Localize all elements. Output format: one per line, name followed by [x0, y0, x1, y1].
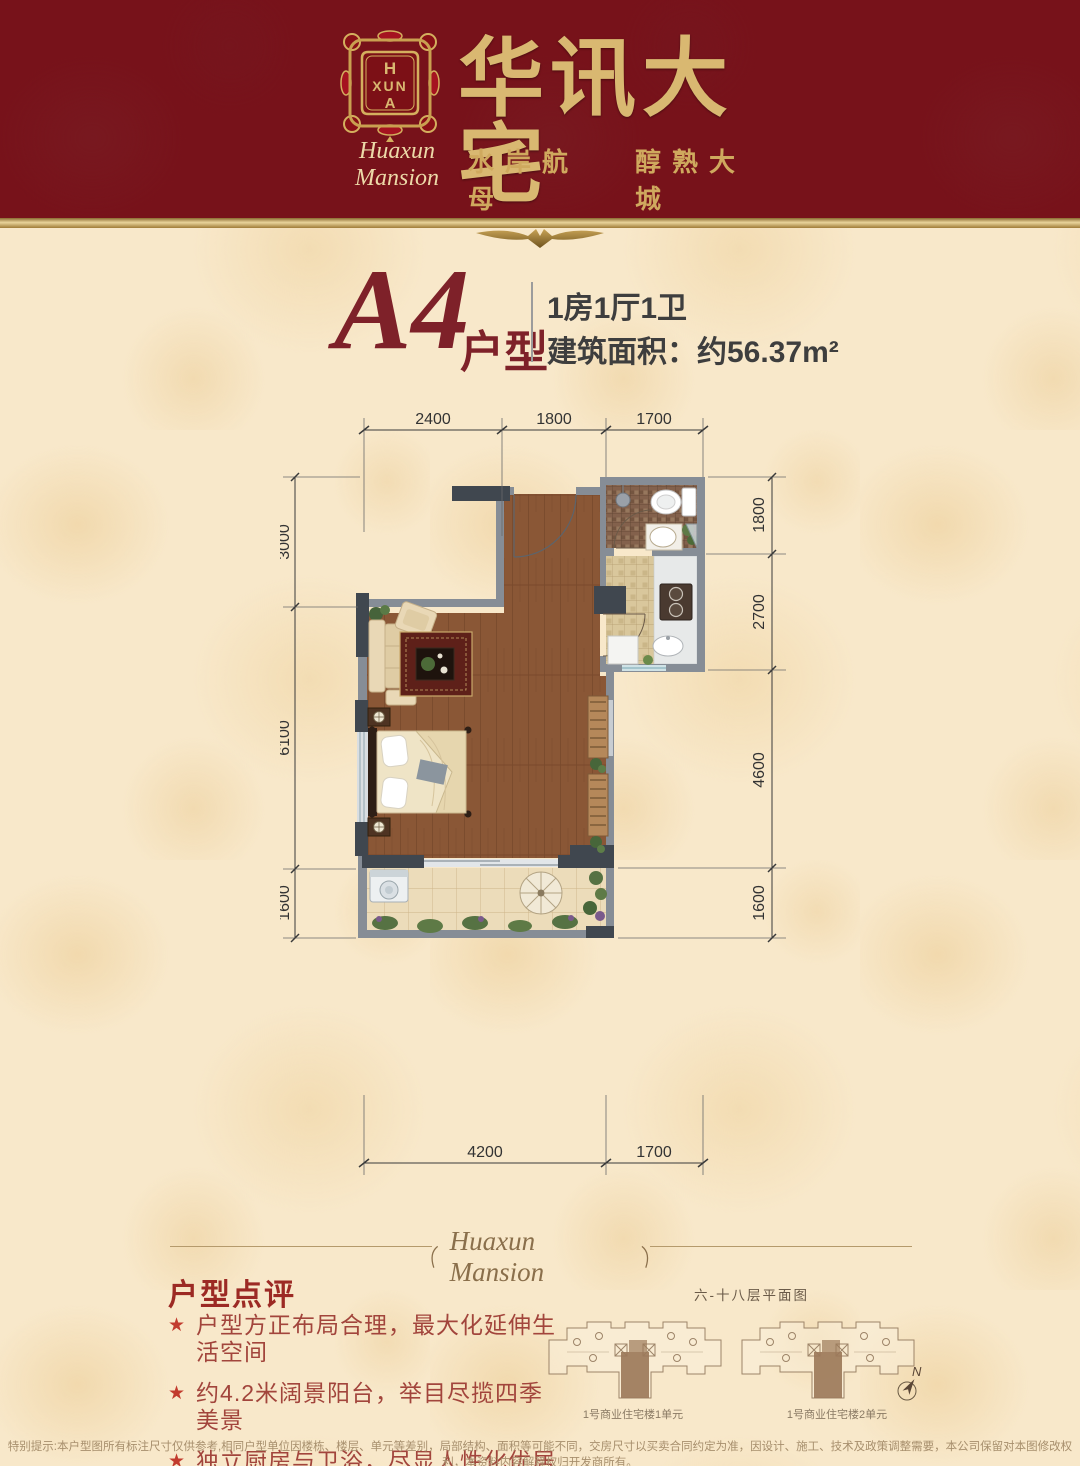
keyplan-title: 六-十八层平面图 [694, 1284, 809, 1304]
brand-subtitle: 水岸航母 醇熟大城 [468, 142, 768, 216]
review-bullet: ★ 户型方正布局合理，最大化延伸生活空间 [168, 1312, 558, 1366]
building-plan-2 [742, 1322, 914, 1398]
monogram-top: H [384, 59, 396, 78]
dim-left-1: 3000 [280, 524, 293, 560]
building-plan-1 [549, 1322, 721, 1398]
bed [368, 727, 472, 818]
header-banner: H XUN A 华讯大宅 Huaxun Mansion 水岸航母 醇熟大城 [0, 0, 1080, 218]
review-bullet-text: 约4.2米阔景阳台，举目尽揽四季美景 [196, 1380, 558, 1434]
rug-and-coffee-table [400, 632, 472, 696]
dim-bottom-1: 4200 [467, 1144, 503, 1161]
review-bullet: ★ 约4.2米阔景阳台，举目尽揽四季美景 [168, 1380, 558, 1434]
dim-top-2: 1800 [536, 411, 572, 428]
nightstand [368, 708, 390, 726]
dim-left-2: 6100 [280, 720, 293, 756]
dim-right-2: 2700 [751, 594, 768, 630]
disclaimer-text: 特别提示:本户型图所有标注尺寸仅供参考,相同户型单位因楼栋、楼层、单元等差别，局… [0, 1438, 1080, 1466]
unit-code-suffix: 户型 [460, 316, 548, 380]
monogram-mid: XUN [372, 78, 408, 94]
divider-script-row: Huaxun Mansion [428, 1226, 652, 1288]
keyplan-buildings [545, 1306, 925, 1406]
poster-page: H XUN A 华讯大宅 Huaxun Mansion 水岸航母 醇熟大城 A4… [0, 0, 1080, 1466]
north-label: N [912, 1364, 922, 1379]
kitchen-cabinet [608, 636, 638, 664]
toilet [651, 488, 696, 516]
brand-emblem-icon: H XUN A [336, 28, 444, 150]
star-icon: ★ [168, 1312, 185, 1340]
nightstand [368, 818, 390, 836]
dim-right-3: 4600 [751, 752, 768, 788]
divider-line-left [170, 1246, 432, 1247]
unit-code: A4 [334, 252, 469, 368]
patio-table [520, 872, 562, 914]
review-heading: 户型点评 [168, 1270, 296, 1314]
unit-layout: 1房1厅1卫 [547, 283, 687, 327]
flourish-left-icon [428, 1244, 440, 1270]
brand-subtitle-left: 水岸航母 [468, 142, 601, 216]
floor-plan: 2400 1800 1700 3000 6100 1600 1800 2700 … [280, 400, 800, 1190]
gold-flourish-icon [470, 227, 610, 249]
dim-bottom-2: 1700 [636, 1144, 672, 1161]
kitchen-plant [643, 655, 653, 665]
dim-top-3: 1700 [636, 411, 672, 428]
dim-right-4: 1600 [751, 885, 768, 921]
washing-machine [370, 870, 408, 902]
dim-right-1: 1800 [751, 497, 768, 533]
keyplan-label-2: 1号商业住宅楼2单元 [772, 1406, 902, 1422]
divider-line-right [650, 1246, 912, 1247]
star-icon: ★ [168, 1380, 185, 1408]
unit-area: 建筑面积：约56.37m² [547, 327, 839, 371]
dim-left-3: 1600 [280, 885, 293, 921]
flourish-right-icon [640, 1244, 652, 1270]
review-bullet-text: 户型方正布局合理，最大化延伸生活空间 [196, 1312, 558, 1366]
dim-top-1: 2400 [415, 411, 451, 428]
wardrobe [588, 696, 608, 853]
brand-subtitle-right: 醇熟大城 [635, 142, 768, 216]
monogram-bottom: A [385, 95, 396, 112]
unit-title-divider [531, 282, 533, 362]
brand-script: Huaxun Mansion [322, 138, 472, 192]
keyplan-label-1: 1号商业住宅楼1单元 [568, 1406, 698, 1422]
stove [660, 584, 692, 620]
kitchen-sink [653, 636, 683, 656]
north-compass-icon: N [890, 1362, 926, 1406]
divider-script-text: Huaxun Mansion [450, 1226, 631, 1288]
